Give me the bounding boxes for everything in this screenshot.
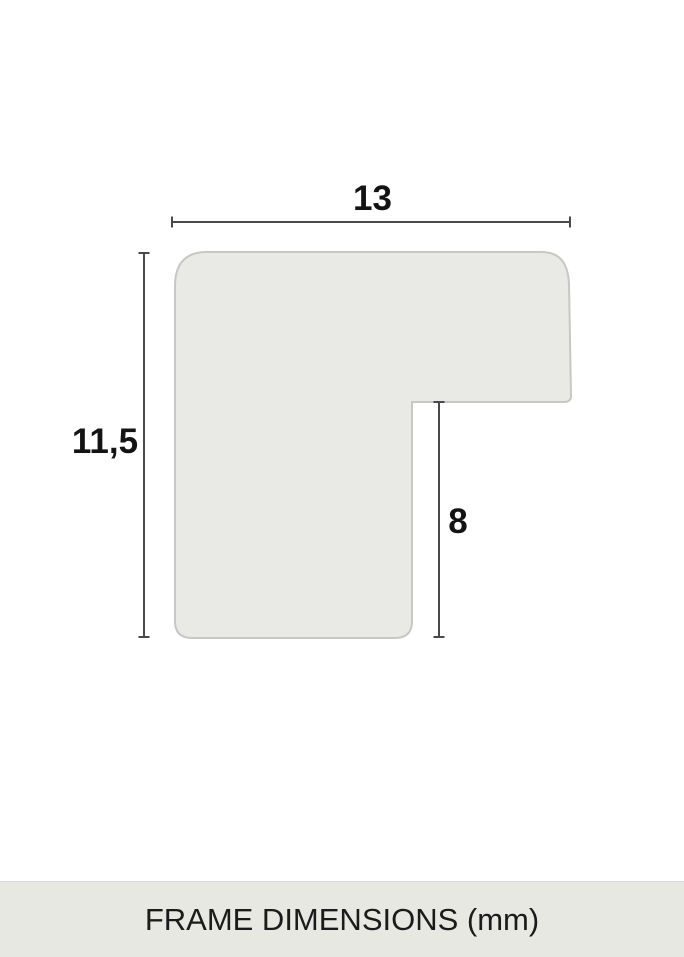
rabbet-depth-dimension-label: 8 bbox=[440, 504, 476, 539]
height-dimension-label: 11,5 bbox=[60, 424, 150, 459]
profile-drawing bbox=[0, 0, 684, 957]
frame-dimension-diagram: 13 11,5 8 FRAME DIMENSIONS (mm) bbox=[0, 0, 684, 957]
width-dimension-line bbox=[172, 217, 570, 228]
footer-caption-text: FRAME DIMENSIONS (mm) bbox=[145, 904, 539, 935]
frame-profile-shape bbox=[175, 252, 571, 638]
width-dimension-label: 13 bbox=[300, 181, 445, 216]
footer-caption-bar: FRAME DIMENSIONS (mm) bbox=[0, 881, 684, 957]
